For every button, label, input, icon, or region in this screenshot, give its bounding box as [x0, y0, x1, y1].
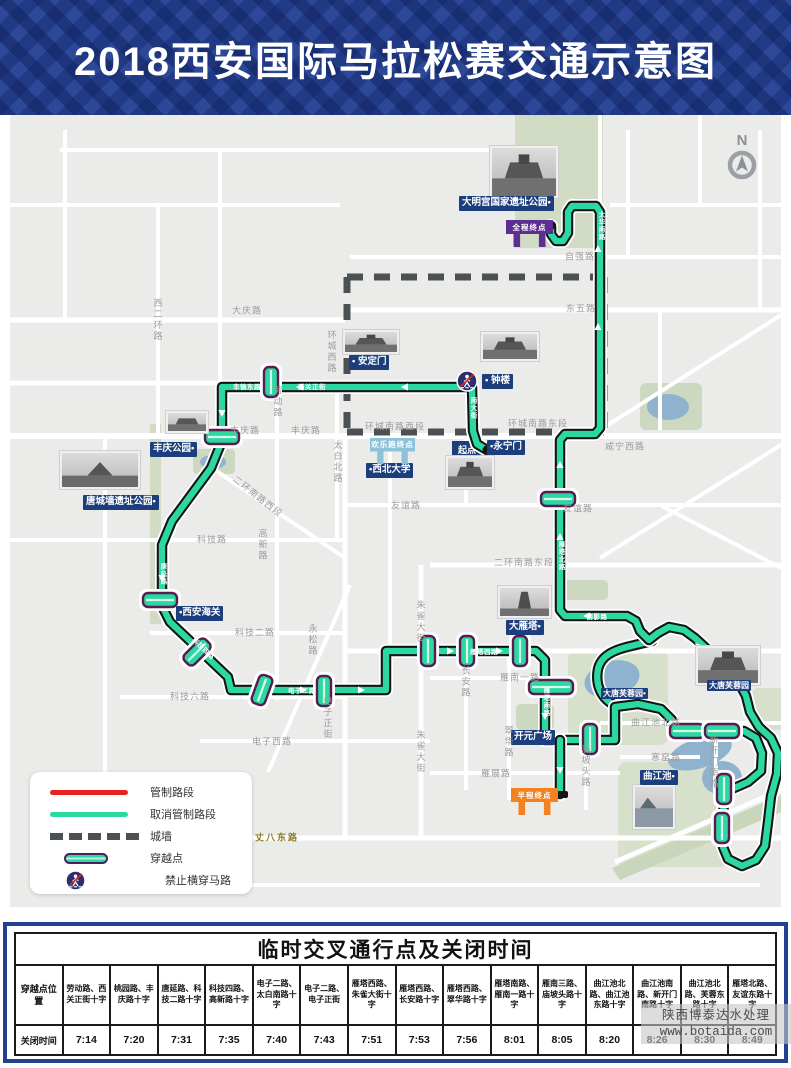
legend-label: 城墙	[150, 828, 172, 844]
crossing-location-cell: 电子二路、电子正街	[300, 965, 348, 1025]
legend-label: 取消管制路段	[150, 806, 216, 822]
city-wall-dash-icon	[50, 833, 139, 840]
legend-label: 管制路段	[150, 784, 194, 800]
crossing-point-pill	[525, 676, 577, 698]
crossing-point-pill	[537, 488, 579, 510]
crossing-location-cell: 雁塔西路、翠华路十字	[443, 965, 491, 1025]
watermark: 陕西博泰达水处理 www.botaida.com	[641, 1004, 791, 1044]
crossing-location-cell: 电子二路、太白南路十字	[253, 965, 301, 1025]
crossing-location-cell: 唐延路、科技二路十字	[158, 965, 206, 1025]
row-header-location: 穿越点位置	[15, 965, 63, 1025]
closure-time-cell: 7:14	[63, 1025, 111, 1055]
photo-andingmen	[345, 332, 397, 352]
photo-zhonglou	[483, 334, 537, 359]
crossing-point-pill	[260, 363, 282, 401]
photo-yongningmen	[448, 458, 492, 487]
photo-fengqing-park	[168, 413, 206, 431]
crossing-point-pill	[313, 672, 335, 710]
legend-row-nojaywalk: 禁止横穿马路	[30, 869, 252, 891]
crossing-location-cell: 雁塔西路、朱雀大街十字	[348, 965, 396, 1025]
no-jaywalking-icon	[65, 870, 86, 891]
closure-time-cell: 7:20	[110, 1025, 158, 1055]
closure-time-cell: 8:01	[491, 1025, 539, 1055]
closure-time-cell: 7:35	[205, 1025, 253, 1055]
crossing-location-cell: 曲江池北路、曲江池东路十字	[586, 965, 634, 1025]
poster-page: 2018西安国际马拉松赛交通示意图	[0, 0, 791, 1068]
crossing-point-pill	[139, 589, 181, 611]
closure-time-cell: 7:31	[158, 1025, 206, 1055]
route-start-cap	[483, 446, 492, 455]
crossing-point-icon	[64, 853, 108, 864]
crossing-location-cell: 桃园路、丰庆路十字	[110, 965, 158, 1025]
row-header-time: 关闭时间	[15, 1025, 63, 1055]
header-banner: 2018西安国际马拉松赛交通示意图	[0, 0, 791, 115]
crossing-location-cell: 雁塔南路、雁南一路十字	[491, 965, 539, 1025]
controlled-road-line	[50, 790, 128, 795]
legend-row-controlled: 管制路段	[30, 781, 252, 803]
photo-qujiangchi	[635, 787, 673, 827]
crossing-point-pill	[417, 632, 439, 670]
crossing-point-pill	[711, 809, 733, 847]
watermark-company: 陕西博泰达水处理	[641, 1007, 791, 1024]
uncontrolled-road-line	[50, 812, 128, 817]
legend-label: 禁止横穿马路	[165, 872, 231, 888]
map-legend: 管制路段 取消管制路段 城墙 穿越点 禁止横穿马路	[30, 772, 252, 894]
closure-time-cell: 8:20	[586, 1025, 634, 1055]
compass: N	[722, 134, 762, 185]
crossing-location-cell: 雁塔西路、长安路十字	[396, 965, 444, 1025]
closure-time-cell: 7:51	[348, 1025, 396, 1055]
crossing-location-cell: 雁南三路、庙坡头路十字	[538, 965, 586, 1025]
legend-row-wall: 城墙	[30, 825, 252, 847]
closure-time-cell: 7:53	[396, 1025, 444, 1055]
photo-furongyuan	[698, 648, 758, 683]
route-finish-cap	[547, 222, 555, 230]
photo-dayanta	[500, 588, 549, 616]
crossing-point-pill	[701, 720, 743, 742]
photo-daminggong	[492, 148, 556, 196]
table-title: 临时交叉通行点及关闭时间	[15, 933, 776, 965]
legend-label: 穿越点	[150, 850, 183, 866]
crossing-point-pill	[509, 632, 531, 670]
closure-time-cell: 7:56	[443, 1025, 491, 1055]
crossing-location-cell: 劳动路、西关正街十字	[63, 965, 111, 1025]
photo-tangchengqiang	[62, 453, 138, 487]
legend-row-uncontrolled: 取消管制路段	[30, 803, 252, 825]
crossing-location-cell: 科技四路、高新路十字	[205, 965, 253, 1025]
compass-north-letter: N	[722, 134, 762, 148]
legend-row-crossing: 穿越点	[30, 847, 252, 869]
closure-time-cell: 8:05	[538, 1025, 586, 1055]
crossing-point-pill	[201, 426, 243, 448]
crossing-point-pill	[713, 770, 735, 808]
poster-title: 2018西安国际马拉松赛交通示意图	[74, 29, 717, 87]
watermark-url: www.botaida.com	[641, 1024, 791, 1041]
crossing-point-pill	[579, 720, 601, 758]
half-finish-cap	[552, 791, 568, 798]
crossing-point-pill	[456, 632, 478, 670]
compass-icon	[725, 148, 759, 180]
no-jaywalking-icon	[457, 371, 477, 391]
closure-time-cell: 7:43	[300, 1025, 348, 1055]
closure-time-cell: 7:40	[253, 1025, 301, 1055]
